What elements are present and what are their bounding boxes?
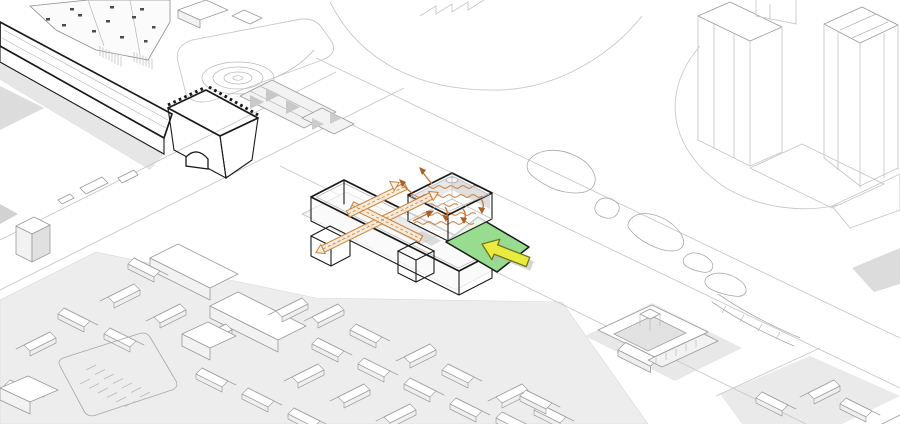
park-island bbox=[628, 214, 684, 251]
tower-facade bbox=[714, 24, 734, 158]
tower-1 bbox=[698, 2, 782, 166]
feature-building bbox=[302, 167, 534, 295]
median-park-islands bbox=[527, 150, 746, 296]
traffic-island bbox=[118, 170, 138, 183]
park-island bbox=[595, 198, 620, 218]
spiral-ring bbox=[233, 76, 243, 80]
se-ground bbox=[720, 356, 900, 424]
podium bbox=[832, 174, 900, 228]
spiral-ring bbox=[224, 72, 252, 84]
podium bbox=[750, 144, 884, 208]
park-island bbox=[683, 253, 713, 272]
left-wedge-small bbox=[0, 204, 18, 224]
museum-building bbox=[30, 0, 262, 69]
airflow-arrowhead bbox=[419, 167, 426, 175]
curved-road bbox=[330, 2, 642, 90]
small-prism bbox=[16, 217, 50, 262]
village-ground bbox=[0, 252, 648, 424]
tower-2 bbox=[824, 7, 898, 188]
traffic-island bbox=[58, 194, 74, 204]
tower-top bbox=[824, 7, 898, 43]
sawtooth-roofs bbox=[420, 0, 484, 16]
spiral-tail bbox=[274, 50, 314, 78]
tower-edges bbox=[698, 16, 782, 166]
diagram-svg bbox=[0, 0, 900, 424]
site-axonometric-diagram bbox=[0, 0, 900, 424]
village-house bbox=[872, 412, 900, 424]
tower-top bbox=[698, 2, 782, 41]
annex-block bbox=[232, 10, 262, 24]
tower-edges bbox=[824, 24, 898, 188]
bridge-ties bbox=[722, 306, 780, 339]
gate-arch bbox=[186, 152, 208, 169]
park-island bbox=[705, 273, 746, 296]
bridge-edge bbox=[718, 294, 800, 338]
spiral-ring bbox=[213, 67, 263, 89]
footbridge bbox=[712, 294, 800, 346]
right-wedge bbox=[852, 248, 900, 292]
traffic-island bbox=[80, 177, 108, 194]
curved-road bbox=[675, 46, 842, 209]
